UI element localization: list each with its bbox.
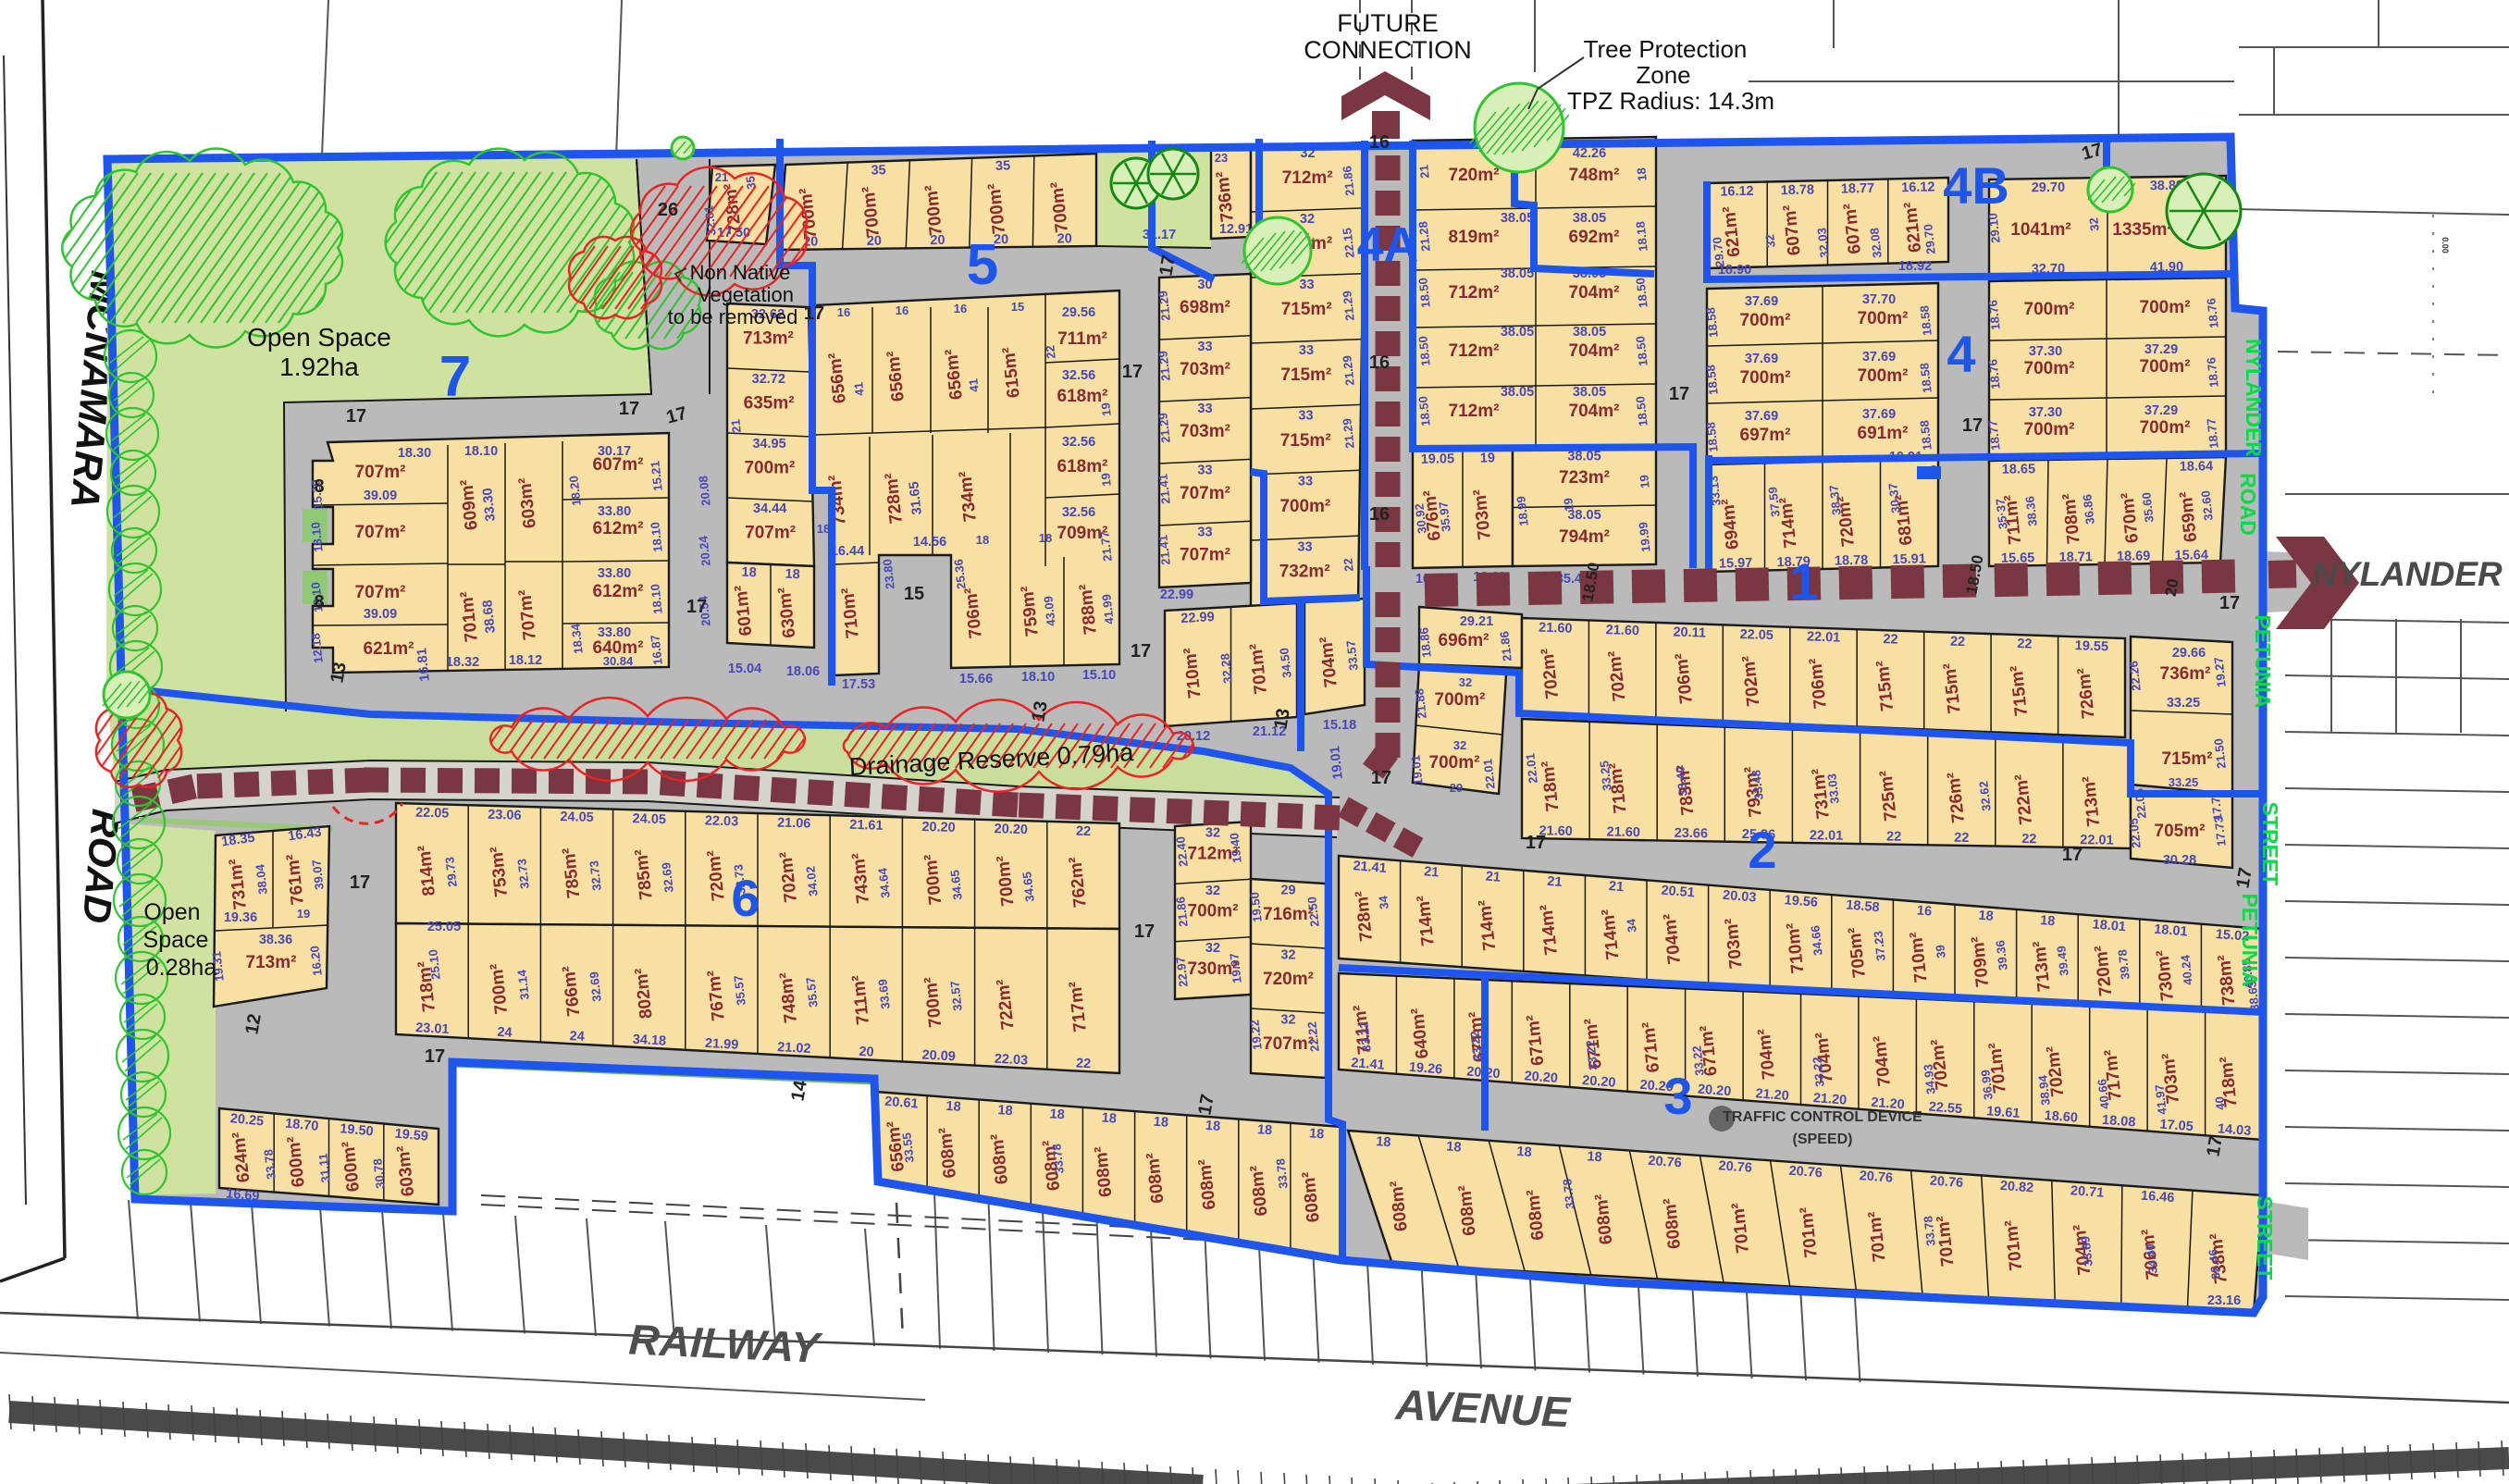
svg-text:712m²: 712m²: [1282, 168, 1333, 188]
svg-text:14.56: 14.56: [913, 535, 946, 550]
svg-text:Vegetation: Vegetation: [698, 283, 794, 306]
svg-text:12: 12: [241, 1012, 266, 1036]
svg-text:20.09: 20.09: [921, 1048, 956, 1065]
svg-text:16: 16: [1369, 504, 1390, 525]
svg-text:6: 6: [731, 869, 760, 927]
svg-text:Space: Space: [143, 927, 209, 953]
svg-text:20.11: 20.11: [1673, 625, 1706, 641]
svg-text:34.18: 34.18: [632, 1033, 666, 1049]
svg-text:33.80: 33.80: [598, 566, 631, 581]
svg-text:705m²: 705m²: [2155, 822, 2206, 841]
svg-text:31.17: 31.17: [1143, 228, 1176, 242]
svg-text:38.05: 38.05: [1501, 211, 1534, 226]
svg-text:618m²: 618m²: [1057, 387, 1108, 406]
svg-text:794m²: 794m²: [1559, 527, 1610, 547]
svg-text:16: 16: [954, 302, 967, 315]
svg-text:38.05: 38.05: [1573, 385, 1606, 400]
svg-text:37.69: 37.69: [1745, 294, 1778, 309]
svg-text:715m²: 715m²: [1280, 365, 1331, 385]
svg-text:32: 32: [1453, 738, 1466, 752]
svg-text:22.03: 22.03: [994, 1052, 1028, 1069]
svg-text:21.60: 21.60: [1606, 824, 1640, 840]
svg-text:30.28: 30.28: [2163, 853, 2196, 868]
svg-text:19.59: 19.59: [394, 1127, 429, 1144]
svg-text:21.60: 21.60: [1605, 623, 1639, 638]
svg-text:21: 21: [1416, 164, 1431, 179]
svg-text:21: 21: [1424, 864, 1440, 880]
svg-text:32: 32: [1762, 233, 1777, 248]
svg-text:38.05: 38.05: [1501, 266, 1534, 281]
svg-text:700m²: 700m²: [2024, 420, 2075, 439]
svg-text:1335m²: 1335m²: [2112, 220, 2173, 240]
svg-text:700m²: 700m²: [2024, 300, 2075, 319]
svg-text:700m²: 700m²: [2140, 357, 2191, 377]
svg-text:1.92ha: 1.92ha: [279, 352, 359, 381]
svg-text:32: 32: [1280, 948, 1295, 963]
svg-text:21: 21: [1547, 874, 1563, 890]
svg-text:17: 17: [619, 399, 639, 419]
svg-text:20: 20: [930, 233, 945, 248]
svg-text:819m²: 819m²: [1449, 228, 1500, 247]
svg-text:22.05: 22.05: [415, 806, 450, 822]
svg-text:25.05: 25.05: [427, 920, 461, 934]
svg-text:17: 17: [425, 1046, 445, 1067]
svg-text:37.69: 37.69: [1745, 409, 1778, 424]
svg-text:20.76: 20.76: [1929, 1174, 1963, 1192]
svg-text:15.10: 15.10: [1082, 668, 1116, 683]
svg-text:17: 17: [686, 597, 707, 617]
svg-text:18: 18: [1309, 1126, 1325, 1142]
svg-text:19: 19: [1561, 497, 1576, 512]
svg-text:20.76: 20.76: [1718, 1158, 1752, 1176]
svg-text:700m²: 700m²: [2024, 359, 2075, 378]
svg-text:2: 2: [1748, 821, 1776, 879]
svg-text:700m²: 700m²: [1429, 753, 1480, 773]
svg-text:16.12: 16.12: [1901, 179, 1935, 195]
svg-text:30.84: 30.84: [603, 654, 634, 668]
svg-text:612m²: 612m²: [593, 582, 644, 601]
svg-text:Open: Open: [143, 899, 200, 925]
svg-text:22: 22: [1883, 632, 1898, 648]
svg-text:32.56: 32.56: [1062, 368, 1095, 383]
svg-text:18.06: 18.06: [786, 664, 820, 679]
svg-text:37.29: 37.29: [2144, 342, 2178, 357]
svg-text:0.28ha: 0.28ha: [146, 955, 217, 981]
svg-text:19.55: 19.55: [2075, 638, 2109, 654]
svg-text:4: 4: [1947, 325, 1975, 383]
svg-text:704m²: 704m²: [1569, 402, 1620, 421]
svg-text:14.03: 14.03: [2217, 1121, 2251, 1139]
svg-text:17: 17: [350, 872, 370, 893]
svg-text:17: 17: [804, 303, 824, 324]
svg-text:32: 32: [1205, 884, 1220, 898]
svg-text:736m²: 736m²: [2160, 664, 2211, 684]
svg-text:18.78: 18.78: [1780, 182, 1814, 198]
svg-text:15.04: 15.04: [728, 662, 761, 676]
svg-text:18: 18: [1978, 909, 1994, 924]
svg-text:18: 18: [976, 533, 989, 547]
svg-text:696m²: 696m²: [1439, 631, 1489, 650]
svg-text:24: 24: [569, 1029, 585, 1045]
svg-text:29: 29: [1450, 781, 1463, 795]
svg-text:37.29: 37.29: [2144, 403, 2178, 418]
svg-text:707m²: 707m²: [355, 523, 406, 542]
svg-text:7: 7: [439, 345, 471, 409]
svg-text:41: 41: [966, 377, 981, 392]
svg-text:42.26: 42.26: [1573, 146, 1606, 161]
svg-text:19.05: 19.05: [1421, 451, 1455, 467]
svg-text:22.01: 22.01: [1807, 629, 1841, 645]
svg-text:ROAD: ROAD: [2236, 473, 2260, 536]
svg-text:19: 19: [1480, 451, 1495, 465]
svg-text:22.05: 22.05: [1739, 627, 1774, 643]
svg-text:23.66: 23.66: [1675, 826, 1709, 842]
svg-text:33: 33: [1299, 278, 1314, 292]
svg-text:18.10: 18.10: [1021, 670, 1055, 685]
svg-text:22: 22: [2017, 637, 2033, 652]
svg-text:AVENUE: AVENUE: [1393, 1380, 1572, 1437]
svg-text:703m²: 703m²: [1180, 422, 1230, 441]
svg-text:21.02: 21.02: [777, 1040, 811, 1057]
svg-text:720m²: 720m²: [1263, 970, 1314, 989]
svg-text:38.05: 38.05: [1501, 325, 1534, 340]
svg-text:35: 35: [995, 158, 1011, 174]
svg-text:621m²: 621m²: [364, 639, 414, 659]
svg-text:700m²: 700m²: [2140, 418, 2191, 438]
svg-text:4A: 4A: [1357, 218, 1418, 272]
svg-text:618m²: 618m²: [1057, 457, 1108, 476]
svg-text:18: 18: [1516, 1144, 1532, 1160]
svg-text:712m²: 712m²: [1449, 283, 1500, 303]
svg-text:715m²: 715m²: [2162, 749, 2213, 769]
svg-text:NYLANDER: NYLANDER: [2242, 339, 2266, 457]
svg-text:16: 16: [837, 305, 850, 319]
svg-text:698m²: 698m²: [1180, 298, 1230, 317]
svg-text:18.60: 18.60: [2044, 1108, 2078, 1126]
svg-text:33.80: 33.80: [598, 504, 631, 519]
svg-text:692m²: 692m²: [1569, 228, 1620, 247]
svg-text:33.25: 33.25: [2169, 775, 2199, 789]
svg-text:19.36: 19.36: [224, 910, 257, 925]
svg-text:20.20: 20.20: [994, 822, 1028, 837]
svg-text:21.06: 21.06: [777, 816, 811, 832]
svg-text:22: 22: [1950, 635, 1966, 650]
svg-text:18.58: 18.58: [1846, 897, 1880, 915]
svg-text:17: 17: [2203, 1134, 2227, 1158]
svg-text:33: 33: [1197, 464, 1212, 478]
svg-text:0.00: 0.00: [2441, 237, 2450, 254]
svg-text:17: 17: [1122, 362, 1143, 382]
svg-text:32.56: 32.56: [1062, 435, 1095, 450]
svg-text:39.09: 39.09: [364, 607, 397, 622]
svg-text:18.30: 18.30: [398, 446, 431, 461]
svg-text:21: 21: [1485, 870, 1501, 885]
svg-text:22: 22: [1341, 557, 1355, 572]
svg-text:18: 18: [1256, 1122, 1272, 1138]
svg-text:711m²: 711m²: [1057, 329, 1107, 349]
svg-text:39.09: 39.09: [364, 488, 397, 503]
svg-text:CONNECTION: CONNECTION: [1304, 36, 1472, 64]
svg-text:34: 34: [1376, 895, 1391, 910]
svg-text:20.76: 20.76: [1859, 1169, 1893, 1186]
svg-text:17.53: 17.53: [842, 677, 875, 692]
svg-text:21.60: 21.60: [1539, 621, 1573, 637]
svg-text:715m²: 715m²: [1280, 431, 1331, 451]
svg-text:21.20: 21.20: [1812, 1091, 1847, 1108]
svg-text:13: 13: [1028, 699, 1052, 723]
svg-text:20.20: 20.20: [1697, 1082, 1731, 1100]
svg-text:26: 26: [658, 200, 678, 220]
svg-text:732m²: 732m²: [1279, 563, 1330, 582]
svg-text:21.20: 21.20: [1755, 1086, 1789, 1104]
svg-text:32: 32: [2086, 216, 2101, 231]
svg-text:635m²: 635m²: [744, 394, 795, 414]
svg-text:13: 13: [327, 661, 351, 685]
svg-text:33.25: 33.25: [2167, 696, 2200, 711]
svg-text:18: 18: [946, 1099, 961, 1115]
svg-text:22.01: 22.01: [2080, 833, 2114, 848]
svg-text:TPZ Radius: 14.3m: TPZ Radius: 14.3m: [1567, 87, 1774, 115]
svg-text:715m²: 715m²: [1281, 300, 1332, 319]
svg-text:612m²: 612m²: [593, 519, 644, 538]
svg-text:18.01: 18.01: [2092, 917, 2126, 934]
svg-text:17: 17: [1371, 768, 1391, 788]
svg-text:Non Native: Non Native: [690, 261, 791, 284]
svg-text:22.03: 22.03: [705, 813, 739, 829]
svg-text:Zone: Zone: [1636, 61, 1690, 89]
svg-text:19.56: 19.56: [1784, 893, 1818, 910]
svg-text:22.55: 22.55: [1928, 1100, 1962, 1118]
svg-text:20.20: 20.20: [1524, 1069, 1558, 1086]
svg-text:24.05: 24.05: [632, 811, 666, 827]
svg-text:8: 8: [314, 476, 324, 497]
svg-text:700m²: 700m²: [1188, 902, 1239, 921]
svg-text:Open Space: Open Space: [247, 323, 391, 352]
svg-text:18: 18: [1153, 1115, 1168, 1131]
svg-text:20.76: 20.76: [1788, 1164, 1823, 1181]
svg-text:691m²: 691m²: [1858, 424, 1909, 443]
svg-text:15.18: 15.18: [1323, 718, 1356, 733]
svg-text:748m²: 748m²: [1569, 166, 1620, 185]
svg-text:35: 35: [871, 163, 886, 179]
svg-text:18: 18: [1205, 1119, 1220, 1134]
svg-text:17: 17: [1962, 415, 1983, 436]
svg-text:29: 29: [1280, 884, 1295, 898]
svg-text:20.25: 20.25: [229, 1111, 265, 1129]
svg-text:16: 16: [896, 303, 908, 317]
svg-text:23.06: 23.06: [488, 808, 522, 823]
svg-text:18.65: 18.65: [2002, 462, 2036, 477]
svg-text:35: 35: [743, 175, 758, 190]
svg-text:21: 21: [728, 418, 743, 433]
svg-text:20.61: 20.61: [884, 1094, 919, 1112]
svg-text:704m²: 704m²: [1569, 283, 1620, 303]
svg-text:21.41: 21.41: [1353, 859, 1387, 876]
svg-text:29.21: 29.21: [1460, 614, 1493, 629]
svg-text:18.08: 18.08: [2102, 1113, 2136, 1131]
svg-text:22.01: 22.01: [1810, 828, 1844, 844]
svg-text:707m²: 707m²: [745, 524, 796, 543]
svg-text:23.16: 23.16: [2207, 1293, 2241, 1308]
svg-text:17: 17: [1194, 1093, 1218, 1117]
svg-text:17: 17: [2219, 593, 2240, 613]
svg-text:40: 40: [2212, 1095, 2227, 1110]
svg-text:39: 39: [1933, 944, 1947, 958]
svg-text:18.12: 18.12: [509, 653, 542, 668]
svg-text:19: 19: [1098, 472, 1113, 487]
svg-text:16.12: 16.12: [1720, 184, 1754, 200]
svg-text:37.69: 37.69: [1862, 407, 1896, 422]
svg-text:22: 22: [1076, 824, 1092, 839]
svg-text:34.95: 34.95: [752, 437, 785, 451]
svg-text:29.66: 29.66: [2172, 646, 2206, 661]
svg-text:18.32: 18.32: [446, 655, 479, 670]
svg-text:22.99: 22.99: [1180, 610, 1215, 626]
svg-text:to be removed: to be removed: [668, 305, 798, 328]
svg-text:STREET: STREET: [2258, 802, 2282, 886]
svg-text:TRAFFIC CONTROL DEVICE: TRAFFIC CONTROL DEVICE: [1723, 1109, 1922, 1125]
svg-text:713m²: 713m²: [743, 329, 794, 349]
svg-text:STREET: STREET: [2253, 1196, 2277, 1280]
svg-text:700m²: 700m²: [1435, 690, 1486, 710]
svg-text:30.17: 30.17: [598, 444, 631, 459]
svg-text:22: 22: [1886, 830, 1901, 845]
svg-text:18: 18: [741, 565, 757, 581]
svg-text:24.05: 24.05: [560, 810, 594, 825]
svg-text:17: 17: [2232, 866, 2256, 890]
svg-text:19.50: 19.50: [340, 1121, 375, 1139]
svg-text:20.71: 20.71: [2070, 1183, 2104, 1201]
svg-text:19: 19: [1098, 402, 1113, 416]
svg-text:20.20: 20.20: [1582, 1073, 1616, 1091]
svg-text:18: 18: [997, 1103, 1013, 1119]
svg-text:5: 5: [967, 233, 998, 297]
svg-text:PETUNIA: PETUNIA: [2238, 894, 2262, 987]
svg-text:15.66: 15.66: [959, 672, 993, 686]
svg-text:37.30: 37.30: [2029, 405, 2062, 420]
svg-text:33: 33: [1297, 540, 1312, 555]
svg-text:19.61: 19.61: [1986, 1104, 2021, 1121]
svg-text:18: 18: [1634, 167, 1649, 181]
svg-text:33: 33: [1298, 409, 1313, 424]
svg-text:3: 3: [1663, 1067, 1692, 1125]
svg-text:38.05: 38.05: [1567, 450, 1601, 464]
svg-text:22: 22: [1043, 344, 1057, 359]
svg-text:22: 22: [1954, 831, 1969, 846]
svg-text:23: 23: [1215, 151, 1228, 165]
svg-text:PETUNIA: PETUNIA: [2251, 615, 2275, 709]
svg-text:18: 18: [1587, 1149, 1602, 1165]
svg-text:20: 20: [1057, 231, 1071, 246]
svg-text:17: 17: [1156, 254, 1180, 278]
svg-text:19.26: 19.26: [1408, 1060, 1442, 1078]
svg-text:18: 18: [785, 567, 800, 583]
svg-text:37.30: 37.30: [2029, 344, 2062, 359]
svg-text:15: 15: [1011, 300, 1024, 314]
svg-text:1041m²: 1041m²: [2010, 220, 2071, 240]
svg-text:700m²: 700m²: [1740, 311, 1791, 330]
svg-text:RAILWAY: RAILWAY: [628, 1315, 825, 1371]
svg-text:703m²: 703m²: [1180, 360, 1230, 379]
svg-text:32: 32: [1300, 212, 1315, 227]
svg-text:707m²: 707m²: [355, 583, 406, 602]
svg-text:20.82: 20.82: [1999, 1179, 2033, 1196]
svg-text:Tree Protection: Tree Protection: [1584, 35, 1748, 63]
svg-text:16.44: 16.44: [831, 544, 864, 559]
svg-text:21.41: 21.41: [1351, 1056, 1385, 1073]
svg-text:707m²: 707m²: [1180, 484, 1230, 503]
svg-text:32: 32: [1205, 826, 1220, 841]
svg-text:700m²: 700m²: [2140, 298, 2191, 317]
svg-text:32: 32: [1459, 675, 1472, 689]
svg-text:18: 18: [1039, 531, 1052, 545]
svg-text:713m²: 713m²: [246, 953, 297, 972]
svg-text:19: 19: [297, 907, 310, 921]
svg-text:723m²: 723m²: [1559, 468, 1610, 488]
svg-text:20.20: 20.20: [921, 820, 956, 835]
svg-text:29.70: 29.70: [2032, 180, 2066, 196]
svg-text:24: 24: [497, 1025, 513, 1041]
svg-text:700m²: 700m²: [1740, 368, 1791, 388]
svg-text:21: 21: [1608, 879, 1624, 895]
svg-text:700m²: 700m²: [1858, 309, 1909, 328]
svg-text:704m²: 704m²: [1569, 341, 1620, 361]
svg-text:17: 17: [346, 406, 366, 427]
svg-text:712m²: 712m²: [1449, 402, 1500, 421]
svg-text:33: 33: [1197, 402, 1212, 416]
svg-text:21.99: 21.99: [705, 1036, 739, 1053]
svg-text:32.72: 32.72: [752, 372, 785, 387]
svg-text:34: 34: [1624, 918, 1639, 934]
svg-text:18: 18: [1049, 1107, 1065, 1122]
svg-text:18.92: 18.92: [1898, 259, 1932, 274]
svg-text:NYLANDER: NYLANDER: [2312, 555, 2503, 593]
svg-text:20: 20: [2162, 577, 2182, 598]
svg-text:33: 33: [1197, 526, 1212, 540]
svg-text:707m²: 707m²: [1180, 546, 1230, 565]
svg-text:16: 16: [1369, 132, 1390, 153]
svg-text:17: 17: [1131, 641, 1151, 662]
svg-text:41: 41: [851, 381, 866, 396]
svg-text:20.76: 20.76: [1648, 1154, 1682, 1171]
svg-text:16.46: 16.46: [2141, 1189, 2175, 1206]
svg-text:33: 33: [1197, 340, 1212, 354]
svg-text:697m²: 697m²: [1740, 426, 1791, 445]
svg-text:20.03: 20.03: [1722, 888, 1756, 906]
svg-text:18.64: 18.64: [2180, 459, 2214, 475]
svg-text:33: 33: [1299, 343, 1314, 358]
svg-text:20: 20: [867, 234, 882, 249]
svg-text:18: 18: [1101, 1110, 1117, 1126]
svg-text:8: 8: [314, 592, 324, 612]
svg-text:17.05: 17.05: [2159, 1118, 2194, 1135]
svg-text:15: 15: [904, 584, 924, 604]
svg-text:29.56: 29.56: [1062, 305, 1095, 320]
svg-text:37.69: 37.69: [1862, 350, 1896, 365]
svg-text:700m²: 700m²: [744, 459, 795, 478]
svg-text:16: 16: [1369, 352, 1390, 373]
svg-text:18.01: 18.01: [2154, 922, 2188, 940]
svg-text:32: 32: [1280, 1013, 1295, 1028]
svg-text:33.80: 33.80: [598, 625, 631, 640]
svg-text:18: 18: [2040, 913, 2056, 929]
svg-text:4B: 4B: [1943, 156, 2009, 215]
svg-text:21.61: 21.61: [849, 818, 884, 834]
svg-text:720m²: 720m²: [1449, 166, 1500, 185]
svg-text:18.70: 18.70: [284, 1117, 319, 1134]
svg-text:16: 16: [1916, 903, 1932, 919]
svg-text:38.05: 38.05: [1573, 325, 1606, 340]
